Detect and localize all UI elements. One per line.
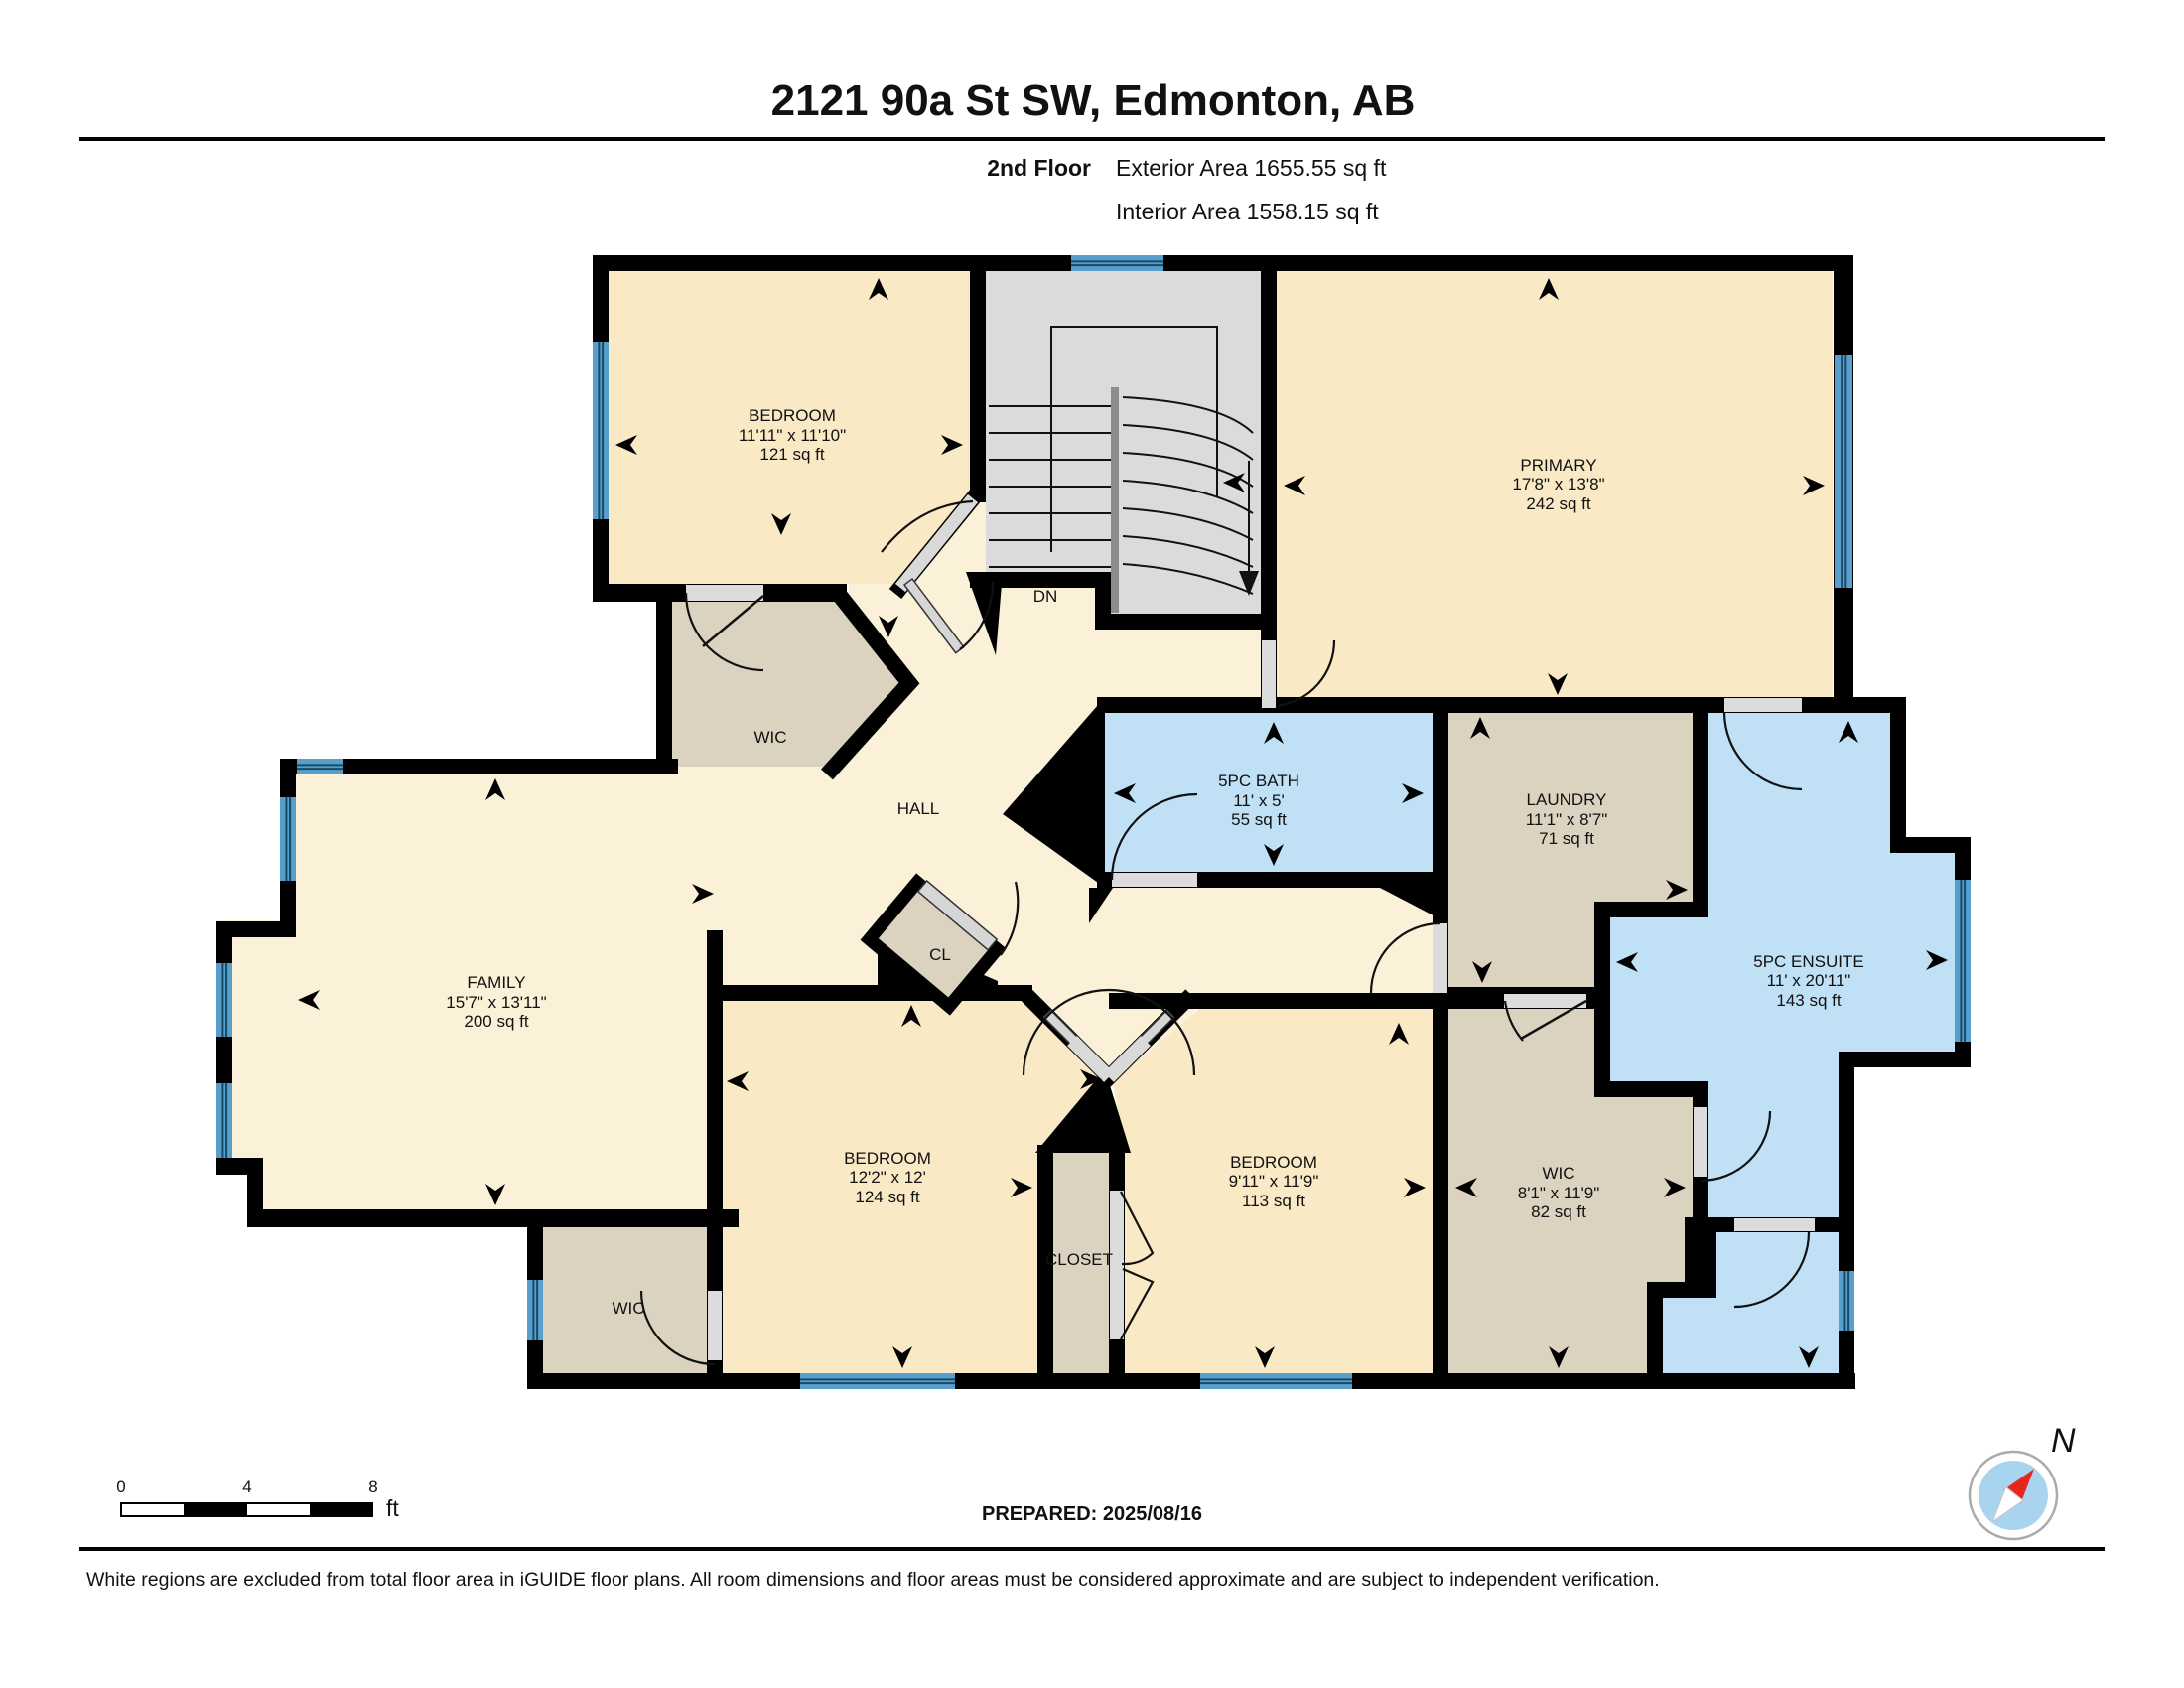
svg-text:N: N — [2051, 1422, 2076, 1460]
svg-text:Interior Area 1558.15 sq ft: Interior Area 1558.15 sq ft — [1116, 199, 1379, 224]
svg-text:2nd Floor: 2nd Floor — [987, 155, 1091, 181]
svg-text:White regions are excluded fro: White regions are excluded from total fl… — [86, 1569, 1660, 1591]
svg-text:143 sq ft: 143 sq ft — [1776, 991, 1841, 1010]
svg-text:11'1" x 8'7": 11'1" x 8'7" — [1526, 810, 1608, 829]
svg-text:BEDROOM: BEDROOM — [749, 406, 836, 425]
svg-text:WIC: WIC — [612, 1299, 644, 1318]
svg-text:242 sq ft: 242 sq ft — [1526, 494, 1590, 513]
svg-text:15'7" x 13'11": 15'7" x 13'11" — [446, 993, 546, 1012]
svg-text:8'1" x 11'9": 8'1" x 11'9" — [1518, 1184, 1600, 1202]
svg-text:PREPARED: 2025/08/16: PREPARED: 2025/08/16 — [982, 1503, 1202, 1525]
svg-text:11'11" x 11'10": 11'11" x 11'10" — [739, 426, 846, 445]
svg-text:12'2" x 12': 12'2" x 12' — [849, 1168, 926, 1187]
svg-text:CL: CL — [929, 945, 951, 964]
svg-text:CLOSET: CLOSET — [1045, 1250, 1113, 1269]
svg-text:9'11" x 11'9": 9'11" x 11'9" — [1229, 1172, 1319, 1191]
svg-text:82 sq ft: 82 sq ft — [1531, 1202, 1586, 1221]
svg-text:Exterior Area 1655.55 sq ft: Exterior Area 1655.55 sq ft — [1116, 155, 1387, 181]
svg-text:8: 8 — [368, 1477, 377, 1496]
svg-text:BEDROOM: BEDROOM — [844, 1149, 931, 1168]
svg-text:5PC ENSUITE: 5PC ENSUITE — [1753, 952, 1863, 971]
svg-text:11' x 5': 11' x 5' — [1233, 791, 1285, 810]
svg-text:BEDROOM: BEDROOM — [1230, 1153, 1317, 1172]
svg-text:124 sq ft: 124 sq ft — [855, 1188, 919, 1206]
svg-text:WIC: WIC — [1542, 1164, 1574, 1183]
svg-text:LAUNDRY: LAUNDRY — [1527, 790, 1607, 809]
svg-text:55 sq ft: 55 sq ft — [1231, 810, 1287, 829]
svg-text:11' x 20'11": 11' x 20'11" — [1767, 971, 1851, 990]
svg-text:WIC: WIC — [753, 728, 786, 747]
svg-text:200 sq ft: 200 sq ft — [464, 1012, 528, 1031]
svg-text:0: 0 — [116, 1477, 125, 1496]
svg-text:71 sq ft: 71 sq ft — [1539, 829, 1594, 848]
svg-text:ft: ft — [386, 1495, 399, 1521]
svg-text:121 sq ft: 121 sq ft — [759, 445, 824, 464]
svg-text:2121 90a St SW, Edmonton, AB: 2121 90a St SW, Edmonton, AB — [771, 76, 1416, 125]
svg-text:PRIMARY: PRIMARY — [1520, 456, 1596, 475]
svg-text:113 sq ft: 113 sq ft — [1242, 1192, 1305, 1210]
svg-text:17'8" x 13'8": 17'8" x 13'8" — [1512, 475, 1604, 493]
svg-text:DN: DN — [1033, 587, 1058, 606]
svg-text:5PC BATH: 5PC BATH — [1218, 772, 1299, 790]
svg-text:HALL: HALL — [897, 799, 940, 818]
svg-text:FAMILY: FAMILY — [467, 973, 525, 992]
svg-text:4: 4 — [242, 1477, 251, 1496]
